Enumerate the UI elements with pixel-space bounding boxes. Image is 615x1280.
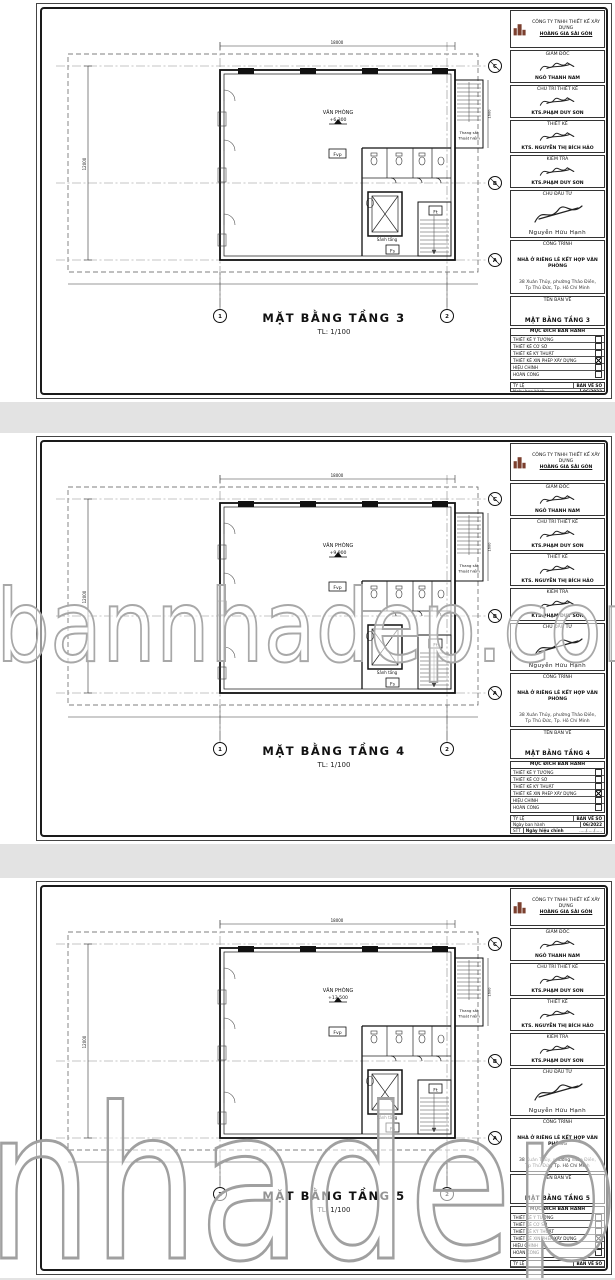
role-label: THIẾT KẾ: [547, 1000, 568, 1005]
issue-purpose-header: MỤC ĐÍCH BAN HÀNH: [511, 762, 604, 769]
title-block: CÔNG TY TNHH THIẾT KẾ XÂY DỰNG HOÀNG GIA…: [510, 443, 605, 834]
plan-title: MẶT BẰNG TẦNG 3: [262, 308, 405, 325]
role-label: KIỂM TRA: [547, 1035, 569, 1040]
role-designer: THIẾT KẾ KTS. NGUYỄN THỊ BÍCH HẢO: [510, 120, 605, 153]
company-name-line1: CÔNG TY TNHH THIẾT KẾ XÂY DỰNG: [529, 898, 603, 909]
signature-icon: [538, 563, 578, 576]
investor-block: CHỦ ĐẦU TƯ Nguyễn Hữu Hạnh: [510, 190, 605, 238]
checkbox-icon: [595, 797, 602, 804]
purpose-row: THIẾT KẾ CƠ SỞ: [511, 776, 604, 783]
purpose-row: THIẾT KẾ KỸ THUẬT: [511, 783, 604, 790]
checkbox-icon: [595, 1214, 602, 1221]
role-name: KTS.PHẠM DUY SƠN: [531, 181, 583, 186]
signature-icon: [538, 60, 578, 73]
sheet-floor-5: +13.500 MẶT BẰNG TẦNG 5 TL: 1/100 CÔNG T…: [0, 878, 615, 1278]
plan-title: MẶT BẰNG TẦNG 5: [262, 1186, 405, 1203]
purpose-row: HIỆU CHỈNH: [511, 797, 604, 804]
company-name-line2: HOÀNG GIA SÀI GÒN: [529, 465, 603, 471]
floor-level: +9.900: [329, 550, 346, 556]
investor-block: CHỦ ĐẦU TƯ Nguyễn Hữu Hạnh: [510, 1068, 605, 1116]
checkbox-icon: [595, 783, 602, 790]
investor-label: CHỦ ĐẦU TƯ: [543, 625, 573, 630]
investor-name: Nguyễn Hữu Hạnh: [529, 663, 586, 669]
project-name: NHÀ Ở RIÊNG LẺ KẾT HỢP VĂN PHÒNG: [512, 1136, 603, 1147]
role-label: GIÁM ĐỐC: [546, 485, 570, 490]
title-block: CÔNG TY TNHH THIẾT KẾ XÂY DỰNG HOÀNG GIA…: [510, 10, 605, 392]
purpose-row: THIẾT KẾ KỸ THUẬT: [511, 1228, 604, 1235]
role-label: THIẾT KẾ: [547, 555, 568, 560]
drawing-name-block: TÊN BẢN VẼ MẶT BẰNG TẦNG 3: [510, 296, 605, 326]
role-label: CHỦ TRÌ THIẾT KẾ: [537, 965, 578, 970]
footer-table: TỶ LỆBẢN VẼ SỐ Ngày ban hành06/2022 STTN…: [510, 382, 605, 392]
checkbox-icon: [595, 1221, 602, 1228]
drawing-name-label: TÊN BẢN VẼ: [544, 731, 572, 736]
project-label: CÔNG TRÌNH: [543, 1120, 573, 1125]
plan-scale: TL: 1/100: [317, 761, 351, 769]
signature-icon: [538, 528, 578, 541]
role-name: KTS.PHẠM DUY SƠN: [531, 544, 583, 549]
signature-icon: [530, 203, 586, 225]
company-name-line2: HOÀNG GIA SÀI GÒN: [529, 910, 603, 916]
role-checker: KIỂM TRA KTS.PHẠM DUY SƠN: [510, 1033, 605, 1066]
drawing-name-label: TÊN BẢN VẼ: [544, 1176, 572, 1181]
footer-row-revision: STTNgày hiệu chỉnh...../...../.....: [511, 828, 604, 834]
drawing-name-value: MẶT BẰNG TẦNG 5: [525, 1196, 590, 1202]
investor-name: Nguyễn Hữu Hạnh: [529, 230, 586, 236]
project-block: CÔNG TRÌNH NHÀ Ở RIÊNG LẺ KẾT HỢP VĂN PH…: [510, 1118, 605, 1172]
role-design-lead: CHỦ TRÌ THIẾT KẾ KTS.PHẠM DUY SƠN: [510, 963, 605, 996]
purpose-row: THIẾT KẾ XIN PHÉP XÂY DỰNG: [511, 357, 604, 364]
footer-row-issue: Ngày ban hành06/2022: [511, 1267, 604, 1268]
issue-purpose-table: MỤC ĐÍCH BAN HÀNH THIẾT KẾ Ý TƯỞNG THIẾT…: [510, 1206, 605, 1258]
role-director: GIÁM ĐỐC NGÔ THANH NAM: [510, 928, 605, 961]
purpose-row: THIẾT KẾ XIN PHÉP XÂY DỰNG: [511, 790, 604, 797]
issue-purpose-table: MỤC ĐÍCH BAN HÀNH THIẾT KẾ Ý TƯỞNG THIẾT…: [510, 328, 605, 380]
floor-level: +13.500: [328, 995, 348, 1001]
purpose-row: THIẾT KẾ Ý TƯỞNG: [511, 769, 604, 776]
company-logo-icon: [512, 454, 528, 470]
company-name-line1: CÔNG TY TNHH THIẾT KẾ XÂY DỰNG: [529, 453, 603, 464]
company-name-line1: CÔNG TY TNHH THIẾT KẾ XÂY DỰNG: [529, 20, 603, 31]
checkbox-icon: [595, 1228, 602, 1235]
signature-icon: [538, 1043, 578, 1056]
role-director: GIÁM ĐỐC NGÔ THANH NAM: [510, 50, 605, 83]
project-label: CÔNG TRÌNH: [543, 675, 573, 680]
purpose-row: HOÀN CÔNG: [511, 371, 604, 377]
footer-table: TỶ LỆBẢN VẼ SỐ Ngày ban hành06/2022 STTN…: [510, 1260, 605, 1268]
company-logo-icon: [512, 21, 528, 37]
issue-purpose-table: MỤC ĐÍCH BAN HÀNH THIẾT KẾ Ý TƯỞNG THIẾT…: [510, 761, 605, 813]
sheet-floor-4: +9.900 MẶT BẰNG TẦNG 4 TL: 1/100 CÔNG TY…: [0, 433, 615, 844]
signature-icon: [538, 938, 578, 951]
checkbox-icon: [595, 1242, 602, 1249]
checkbox-checked-icon: [595, 790, 602, 797]
checkbox-checked-icon: [595, 357, 602, 364]
purpose-row: HOÀN CÔNG: [511, 804, 604, 810]
role-name: KTS.PHẠM DUY SƠN: [531, 989, 583, 994]
role-label: THIẾT KẾ: [547, 122, 568, 127]
investor-name: Nguyễn Hữu Hạnh: [529, 1108, 586, 1114]
purpose-row: HOÀN CÔNG: [511, 1249, 604, 1255]
signature-icon: [538, 598, 578, 611]
role-label: GIÁM ĐỐC: [546, 52, 570, 57]
project-label: CÔNG TRÌNH: [543, 242, 573, 247]
plan-scale: TL: 1/100: [317, 328, 351, 336]
company-block: CÔNG TY TNHH THIẾT KẾ XÂY DỰNG HOÀNG GIA…: [510, 10, 605, 48]
footer-row-issue: Ngày ban hành06/2022: [511, 389, 604, 392]
checkbox-checked-icon: [595, 1235, 602, 1242]
checkbox-icon: [595, 776, 602, 783]
checkbox-icon: [595, 343, 602, 350]
investor-label: CHỦ ĐẦU TƯ: [543, 192, 573, 197]
purpose-row: THIẾT KẾ XIN PHÉP XÂY DỰNG: [511, 1235, 604, 1242]
purpose-row: THIẾT KẾ CƠ SỞ: [511, 343, 604, 350]
project-name: NHÀ Ở RIÊNG LẺ KẾT HỢP VĂN PHÒNG: [512, 258, 603, 269]
role-designer: THIẾT KẾ KTS. NGUYỄN THỊ BÍCH HẢO: [510, 998, 605, 1031]
project-address-line2: Tp Thủ Đức, Tp. Hồ Chí Minh: [519, 1164, 596, 1170]
floor-plan-5: +13.500 MẶT BẰNG TẦNG 5 TL: 1/100: [42, 886, 506, 1222]
role-name: KTS.PHẠM DUY SƠN: [531, 614, 583, 619]
company-logo-icon: [512, 899, 528, 915]
role-name: KTS. NGUYỄN THỊ BÍCH HẢO: [521, 579, 593, 584]
floor-plan-4: +9.900 MẶT BẰNG TẦNG 4 TL: 1/100: [42, 441, 506, 777]
signature-icon: [530, 636, 586, 658]
project-address-line2: Tp Thủ Đức, Tp. Hồ Chí Minh: [519, 719, 596, 725]
project-address-line2: Tp Thủ Đức, Tp. Hồ Chí Minh: [519, 286, 596, 292]
purpose-row: HIỆU CHỈNH: [511, 364, 604, 371]
investor-label: CHỦ ĐẦU TƯ: [543, 1070, 573, 1075]
issue-purpose-header: MỤC ĐÍCH BAN HÀNH: [511, 1207, 604, 1214]
signature-icon: [538, 973, 578, 986]
drawing-name-label: TÊN BẢN VẼ: [544, 298, 572, 303]
checkbox-icon: [595, 804, 602, 811]
checkbox-icon: [595, 336, 602, 343]
role-checker: KIỂM TRA KTS.PHẠM DUY SƠN: [510, 588, 605, 621]
drawing-name-value: MẶT BẰNG TẦNG 3: [525, 318, 590, 324]
role-name: NGÔ THANH NAM: [535, 76, 580, 81]
floor-plan-3: +6.300 MẶT BẰNG TẦNG 3 TL: 1/100: [42, 8, 506, 344]
purpose-row: THIẾT KẾ KỸ THUẬT: [511, 350, 604, 357]
checkbox-icon: [595, 364, 602, 371]
signature-icon: [538, 493, 578, 506]
role-label: KIỂM TRA: [547, 157, 569, 162]
role-design-lead: CHỦ TRÌ THIẾT KẾ KTS.PHẠM DUY SƠN: [510, 85, 605, 118]
role-label: KIỂM TRA: [547, 590, 569, 595]
checkbox-icon: [595, 371, 602, 378]
role-name: NGÔ THANH NAM: [535, 954, 580, 959]
role-designer: THIẾT KẾ KTS. NGUYỄN THỊ BÍCH HẢO: [510, 553, 605, 586]
floor-level: +6.300: [329, 117, 346, 123]
purpose-row: THIẾT KẾ Ý TƯỞNG: [511, 336, 604, 343]
signature-icon: [538, 130, 578, 143]
signature-icon: [530, 1081, 586, 1103]
purpose-row: HIỆU CHỈNH: [511, 1242, 604, 1249]
drawing-name-value: MẶT BẰNG TẦNG 4: [525, 751, 590, 757]
purpose-row: THIẾT KẾ Ý TƯỞNG: [511, 1214, 604, 1221]
company-block: CÔNG TY TNHH THIẾT KẾ XÂY DỰNG HOÀNG GIA…: [510, 443, 605, 481]
purpose-row: THIẾT KẾ CƠ SỞ: [511, 1221, 604, 1228]
role-name: KTS.PHẠM DUY SƠN: [531, 111, 583, 116]
role-name: KTS.PHẠM DUY SƠN: [531, 1059, 583, 1064]
plan-title: MẶT BẰNG TẦNG 4: [262, 741, 405, 758]
role-label: CHỦ TRÌ THIẾT KẾ: [537, 87, 578, 92]
role-checker: KIỂM TRA KTS.PHẠM DUY SƠN: [510, 155, 605, 188]
investor-block: CHỦ ĐẦU TƯ Nguyễn Hữu Hạnh: [510, 623, 605, 671]
role-design-lead: CHỦ TRÌ THIẾT KẾ KTS.PHẠM DUY SƠN: [510, 518, 605, 551]
drawing-name-block: TÊN BẢN VẼ MẶT BẰNG TẦNG 5: [510, 1174, 605, 1204]
plan-scale: TL: 1/100: [317, 1206, 351, 1214]
role-name: KTS. NGUYỄN THỊ BÍCH HẢO: [521, 1024, 593, 1029]
checkbox-icon: [595, 350, 602, 357]
title-block: CÔNG TY TNHH THIẾT KẾ XÂY DỰNG HOÀNG GIA…: [510, 888, 605, 1268]
checkbox-icon: [595, 1249, 602, 1256]
checkbox-icon: [595, 769, 602, 776]
footer-table: TỶ LỆBẢN VẼ SỐ Ngày ban hành06/2022 STTN…: [510, 815, 605, 834]
signature-icon: [538, 1008, 578, 1021]
role-name: KTS. NGUYỄN THỊ BÍCH HẢO: [521, 146, 593, 151]
role-label: GIÁM ĐỐC: [546, 930, 570, 935]
role-label: CHỦ TRÌ THIẾT KẾ: [537, 520, 578, 525]
project-name: NHÀ Ở RIÊNG LẺ KẾT HỢP VĂN PHÒNG: [512, 691, 603, 702]
company-name-line2: HOÀNG GIA SÀI GÒN: [529, 32, 603, 38]
project-block: CÔNG TRÌNH NHÀ Ở RIÊNG LẺ KẾT HỢP VĂN PH…: [510, 240, 605, 294]
project-block: CÔNG TRÌNH NHÀ Ở RIÊNG LẺ KẾT HỢP VĂN PH…: [510, 673, 605, 727]
signature-icon: [538, 95, 578, 108]
company-block: CÔNG TY TNHH THIẾT KẾ XÂY DỰNG HOÀNG GIA…: [510, 888, 605, 926]
sheet-floor-3: +6.300 MẶT BẰNG TẦNG 3 TL: 1/100 CÔNG TY…: [0, 0, 615, 402]
role-director: GIÁM ĐỐC NGÔ THANH NAM: [510, 483, 605, 516]
issue-purpose-header: MỤC ĐÍCH BAN HÀNH: [511, 329, 604, 336]
role-name: NGÔ THANH NAM: [535, 509, 580, 514]
drawing-name-block: TÊN BẢN VẼ MẶT BẰNG TẦNG 4: [510, 729, 605, 759]
signature-icon: [538, 165, 578, 178]
